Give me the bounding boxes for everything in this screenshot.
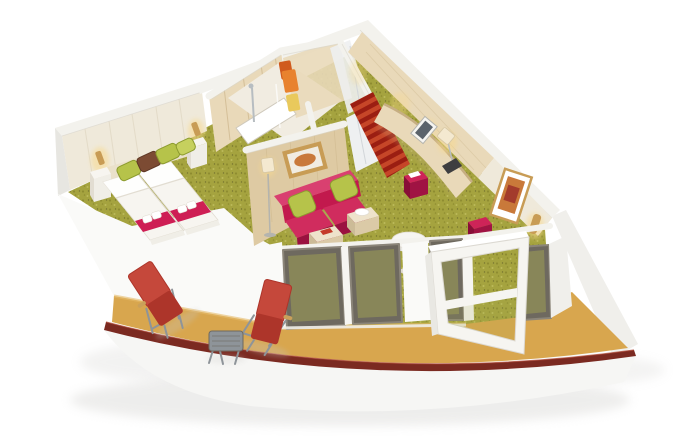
bistro-table bbox=[206, 331, 246, 364]
glass-panel-2 bbox=[349, 244, 402, 324]
glass-panel-1 bbox=[283, 247, 345, 329]
suite-cutaway-canvas bbox=[0, 0, 680, 440]
desk-stool bbox=[404, 171, 428, 199]
suite-cutaway-rendering bbox=[0, 0, 680, 440]
pillar-center bbox=[402, 241, 431, 322]
white-bowl bbox=[355, 209, 369, 216]
shower-head bbox=[249, 84, 254, 89]
